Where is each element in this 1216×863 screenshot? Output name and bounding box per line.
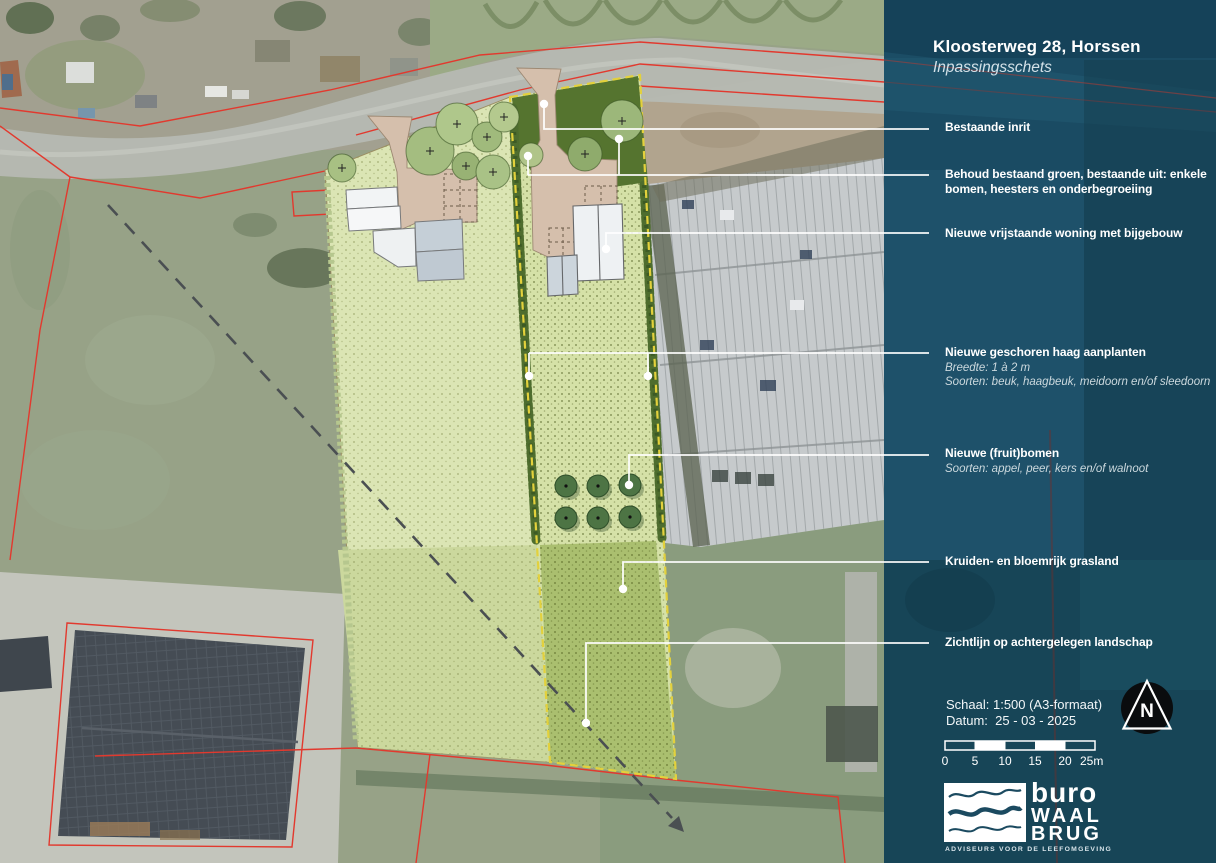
annotation-new-hedge: Nieuwe geschoren haag aanplanten bbox=[945, 345, 1216, 360]
annotation-fruit-trees-species: Soorten: appel, peer, kers en/of walnoot bbox=[945, 462, 1148, 476]
logo-word-buro: buro bbox=[1031, 779, 1097, 807]
annotation-new-hedge-species: Soorten: beuk, haagbeuk, meidoorn en/of … bbox=[945, 375, 1210, 389]
north-arrow-letter: N bbox=[1135, 701, 1159, 723]
scale-tick-0: 0 bbox=[933, 754, 957, 768]
logo-word-brug: BRUG bbox=[1031, 824, 1102, 844]
annotation-new-hedge-width: Breedte: 1 à 2 m bbox=[945, 361, 1030, 375]
inpassingsschets-sheet: Kloosterweg 28, Horssen Inpassingsschets… bbox=[0, 0, 1216, 863]
page-subtitle: Inpassingsschets bbox=[933, 59, 1052, 77]
scale-tick-5: 5 bbox=[963, 754, 987, 768]
annotation-new-dwelling: Nieuwe vrijstaande woning met bijgebouw bbox=[945, 226, 1216, 241]
annotation-retain-existing-green: Behoud bestaand groen, bestaande uit: en… bbox=[945, 167, 1216, 197]
scale-tick-10: 10 bbox=[993, 754, 1017, 768]
scale-tick-15: 15 bbox=[1023, 754, 1047, 768]
annotation-sight-line: Zichtlijn op achtergelegen landschap bbox=[945, 635, 1216, 650]
annotation-existing-entrance: Bestaande inrit bbox=[945, 120, 1216, 135]
greenhouses bbox=[645, 156, 884, 547]
logo-tagline: ADVISEURS VOOR DE LEEFOMGEVING bbox=[945, 846, 1112, 853]
date-text: Datum: 25 - 03 - 2025 bbox=[946, 713, 1076, 729]
scale-tick-20: 20 bbox=[1053, 754, 1077, 768]
annotation-herb-grassland: Kruiden- en bloemrijk grasland bbox=[945, 554, 1216, 569]
logo-icon bbox=[944, 783, 1026, 842]
annotation-fruit-trees: Nieuwe (fruit)bomen bbox=[945, 446, 1216, 461]
scale-text: Schaal: 1:500 (A3-formaat) bbox=[946, 697, 1102, 713]
scale-tick-25m: 25m bbox=[1080, 754, 1116, 768]
page-title: Kloosterweg 28, Horssen bbox=[933, 37, 1141, 57]
